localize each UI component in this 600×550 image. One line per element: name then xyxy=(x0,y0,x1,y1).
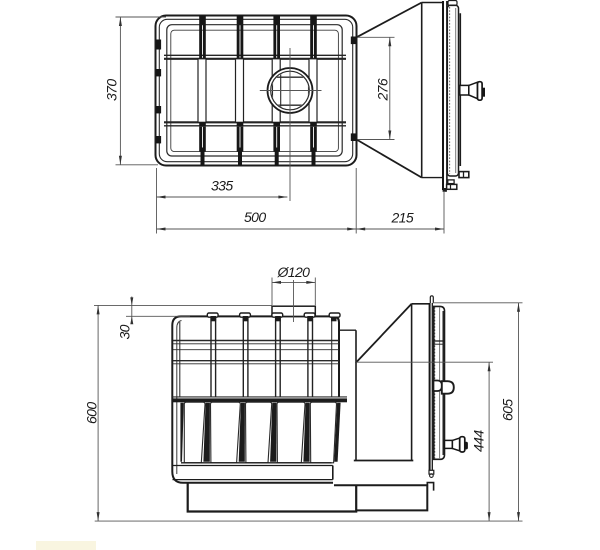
svg-text:276: 276 xyxy=(375,78,391,101)
svg-text:605: 605 xyxy=(500,399,516,421)
svg-text:444: 444 xyxy=(471,430,487,452)
svg-text:Ø120: Ø120 xyxy=(277,264,311,280)
svg-text:370: 370 xyxy=(104,79,120,101)
svg-text:30: 30 xyxy=(117,324,133,339)
svg-text:500: 500 xyxy=(244,209,266,225)
svg-text:335: 335 xyxy=(211,178,233,194)
svg-text:600: 600 xyxy=(84,402,100,424)
svg-text:215: 215 xyxy=(391,210,414,226)
